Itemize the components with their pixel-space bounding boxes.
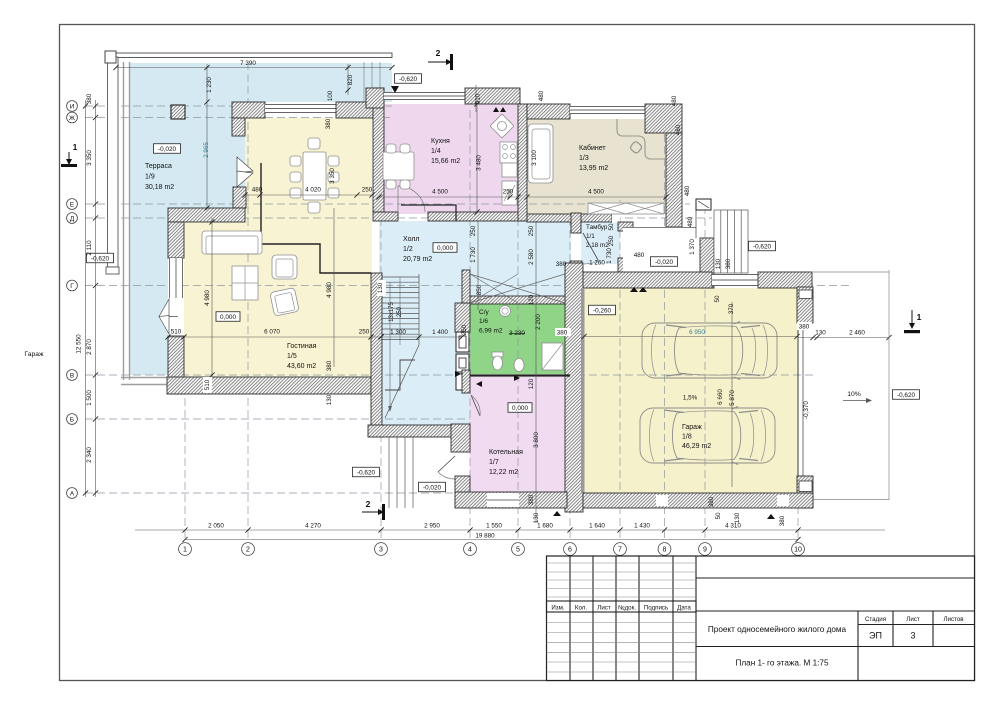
- svg-text:Д: Д: [70, 215, 75, 222]
- svg-text:-0,020: -0,020: [158, 146, 177, 153]
- svg-text:2,18 m2: 2,18 m2: [586, 242, 609, 249]
- svg-text:4 980: 4 980: [326, 282, 333, 298]
- svg-text:3 800: 3 800: [533, 432, 540, 448]
- svg-text:-0,020: -0,020: [423, 484, 442, 491]
- svg-text:2: 2: [246, 546, 250, 553]
- svg-text:2 050: 2 050: [208, 523, 224, 530]
- svg-text:380: 380: [86, 93, 93, 104]
- svg-text:100: 100: [327, 90, 334, 101]
- svg-text:130: 130: [815, 330, 826, 337]
- svg-text:7: 7: [618, 546, 622, 553]
- svg-text:480: 480: [687, 216, 694, 227]
- svg-text:-0,260: -0,260: [593, 307, 612, 314]
- svg-text:В: В: [70, 372, 74, 379]
- svg-text:4 500: 4 500: [432, 189, 448, 196]
- svg-text:1: 1: [73, 142, 78, 152]
- svg-text:120: 120: [528, 294, 535, 305]
- svg-text:Подпись: Подпись: [644, 605, 669, 612]
- svg-text:4 020: 4 020: [305, 187, 321, 194]
- svg-text:480: 480: [675, 124, 682, 135]
- svg-text:1: 1: [183, 546, 187, 553]
- svg-text:Дата: Дата: [677, 605, 691, 612]
- svg-text:-0,620: -0,620: [357, 469, 376, 476]
- svg-text:50: 50: [608, 223, 615, 231]
- svg-text:46,29 m2: 46,29 m2: [682, 443, 711, 450]
- svg-text:Листов: Листов: [943, 616, 964, 623]
- svg-text:130: 130: [734, 512, 741, 523]
- svg-text:3: 3: [379, 546, 383, 553]
- svg-text:1 730: 1 730: [606, 248, 613, 264]
- svg-text:Стадия: Стадия: [865, 616, 886, 623]
- svg-text:480: 480: [252, 187, 263, 194]
- svg-text:2 965: 2 965: [203, 142, 210, 158]
- svg-text:1 300: 1 300: [390, 329, 406, 336]
- svg-text:480: 480: [671, 95, 678, 106]
- svg-text:1 400: 1 400: [432, 329, 448, 336]
- svg-text:380: 380: [708, 496, 715, 507]
- svg-text:12 550: 12 550: [76, 334, 83, 354]
- svg-text:4 500: 4 500: [588, 189, 604, 196]
- svg-text:3 350: 3 350: [329, 168, 336, 184]
- svg-text:А: А: [70, 490, 75, 497]
- svg-text:Кол.: Кол.: [575, 605, 588, 612]
- svg-text:0,000: 0,000: [220, 314, 236, 321]
- svg-text:3 230: 3 230: [509, 330, 525, 337]
- svg-text:2 950: 2 950: [424, 523, 440, 530]
- svg-text:8: 8: [663, 546, 667, 553]
- svg-text:510: 510: [171, 329, 182, 336]
- svg-text:4: 4: [468, 546, 472, 553]
- svg-text:250: 250: [362, 187, 373, 194]
- svg-text:1 730: 1 730: [470, 247, 477, 263]
- svg-text:380: 380: [799, 324, 810, 331]
- svg-text:380: 380: [325, 118, 332, 129]
- svg-text:Холл: Холл: [403, 236, 420, 243]
- svg-text:1/5: 1/5: [287, 353, 297, 360]
- svg-text:2 870: 2 870: [86, 339, 93, 355]
- svg-text:250: 250: [461, 324, 468, 335]
- svg-text:Гостиная: Гостиная: [287, 343, 317, 350]
- svg-text:480: 480: [538, 90, 545, 101]
- svg-text:30,18 m2: 30,18 m2: [145, 184, 174, 191]
- svg-text:2 340: 2 340: [86, 447, 93, 463]
- svg-text:№док.: №док.: [618, 605, 636, 612]
- svg-text:4 270: 4 270: [305, 523, 321, 530]
- svg-text:510: 510: [204, 379, 211, 390]
- svg-text:Кабинет: Кабинет: [579, 144, 606, 152]
- svg-text:Изм.: Изм.: [551, 605, 565, 612]
- svg-text:Проект односемейного жилого до: Проект односемейного жилого дома: [708, 625, 847, 634]
- svg-text:1/3: 1/3: [579, 155, 589, 162]
- svg-text:1/8: 1/8: [682, 434, 692, 441]
- svg-text:1 430: 1 430: [634, 523, 650, 530]
- svg-text:Гараж: Гараж: [24, 351, 44, 358]
- svg-text:130: 130: [377, 282, 384, 293]
- svg-text:1 230: 1 230: [206, 77, 213, 93]
- svg-text:1/7: 1/7: [489, 459, 499, 466]
- svg-text:7 390: 7 390: [240, 60, 256, 67]
- svg-text:480: 480: [634, 252, 645, 259]
- svg-text:Котельная: Котельная: [489, 449, 523, 456]
- svg-text:1/9: 1/9: [145, 174, 155, 181]
- svg-text:1 550: 1 550: [486, 523, 502, 530]
- svg-text:250: 250: [608, 235, 615, 246]
- svg-text:43,60 m2: 43,60 m2: [287, 363, 316, 370]
- svg-text:380: 380: [557, 330, 568, 337]
- svg-text:1,5%: 1,5%: [683, 395, 698, 402]
- svg-text:-0,620: -0,620: [897, 392, 916, 399]
- svg-text:ЭП: ЭП: [869, 631, 882, 641]
- svg-text:2 580: 2 580: [528, 249, 535, 265]
- svg-text:1 260: 1 260: [589, 260, 605, 267]
- svg-text:6 660: 6 660: [717, 389, 724, 405]
- svg-text:13,95 m2: 13,95 m2: [579, 165, 608, 172]
- svg-text:1 640: 1 640: [589, 523, 605, 530]
- svg-text:3 100: 3 100: [531, 150, 538, 166]
- svg-text:15,66 m2: 15,66 m2: [431, 158, 460, 165]
- svg-text:Е: Е: [70, 201, 74, 208]
- svg-text:130: 130: [715, 258, 722, 269]
- svg-text:План 1- го этажа. М 1:75: План 1- го этажа. М 1:75: [735, 659, 828, 668]
- svg-text:50: 50: [715, 512, 722, 520]
- svg-text:250: 250: [397, 306, 403, 317]
- svg-text:-0,370: -0,370: [803, 401, 810, 419]
- svg-text:820: 820: [347, 74, 354, 85]
- svg-text:Г: Г: [70, 283, 74, 290]
- svg-text:250: 250: [359, 329, 370, 336]
- svg-text:1/2: 1/2: [403, 246, 413, 253]
- svg-text:1 370: 1 370: [689, 239, 696, 255]
- svg-text:380: 380: [779, 515, 786, 526]
- svg-text:Ж: Ж: [69, 115, 75, 122]
- svg-text:380: 380: [725, 258, 732, 269]
- svg-text:2 460: 2 460: [849, 330, 865, 337]
- svg-text:-0,620: -0,620: [399, 76, 418, 83]
- svg-text:Гараж: Гараж: [682, 424, 702, 431]
- svg-text:12,22 m2: 12,22 m2: [489, 469, 518, 476]
- svg-text:250: 250: [470, 225, 477, 236]
- svg-text:1 500: 1 500: [86, 390, 93, 406]
- svg-text:250: 250: [503, 189, 514, 196]
- svg-text:9: 9: [703, 546, 707, 553]
- svg-text:3 350: 3 350: [86, 150, 93, 166]
- svg-text:480: 480: [684, 185, 691, 196]
- svg-text:850: 850: [476, 284, 483, 295]
- svg-text:2 110: 2 110: [86, 240, 93, 256]
- svg-text:Тамбур: Тамбур: [586, 223, 608, 231]
- svg-text:Б: Б: [70, 416, 74, 423]
- svg-text:10: 10: [794, 546, 802, 553]
- svg-text:6,99 m2: 6,99 m2: [479, 328, 503, 335]
- svg-text:5 870: 5 870: [729, 390, 736, 406]
- svg-text:Лист: Лист: [906, 616, 920, 623]
- svg-text:250: 250: [528, 225, 535, 236]
- svg-text:1/1: 1/1: [586, 233, 595, 240]
- svg-text:-0,620: -0,620: [753, 243, 772, 250]
- svg-text:19 880: 19 880: [475, 533, 495, 540]
- svg-text:20,79 m2: 20,79 m2: [403, 256, 432, 263]
- svg-text:6 950: 6 950: [689, 329, 705, 336]
- svg-text:С/у: С/у: [479, 309, 490, 316]
- svg-text:1/4: 1/4: [431, 148, 441, 155]
- svg-text:13x175: 13x175: [389, 301, 395, 321]
- svg-text:3: 3: [910, 631, 915, 641]
- svg-text:130: 130: [326, 394, 333, 405]
- svg-text:6: 6: [568, 546, 572, 553]
- svg-text:10%: 10%: [847, 391, 861, 398]
- svg-text:4 980: 4 980: [204, 290, 211, 306]
- svg-text:50: 50: [714, 295, 721, 303]
- svg-text:130: 130: [533, 512, 540, 523]
- svg-text:120: 120: [528, 378, 535, 389]
- svg-text:5: 5: [516, 546, 520, 553]
- svg-text:Терраса: Терраса: [145, 163, 172, 170]
- svg-text:-0,620: -0,620: [91, 255, 110, 262]
- svg-text:0,000: 0,000: [437, 245, 453, 252]
- svg-text:2: 2: [366, 499, 371, 509]
- svg-text:0,000: 0,000: [512, 405, 528, 412]
- svg-text:2: 2: [436, 48, 441, 58]
- svg-text:1: 1: [917, 312, 922, 322]
- svg-text:3 480: 3 480: [476, 155, 483, 171]
- svg-text:2 200: 2 200: [535, 314, 542, 330]
- svg-text:380: 380: [326, 360, 333, 371]
- svg-text:380: 380: [528, 494, 535, 505]
- svg-text:-0,020: -0,020: [655, 259, 674, 266]
- svg-text:380: 380: [556, 261, 567, 268]
- svg-text:Лист: Лист: [597, 605, 611, 612]
- svg-text:И: И: [70, 103, 75, 110]
- svg-text:1/6: 1/6: [479, 318, 488, 325]
- svg-text:370: 370: [728, 303, 735, 314]
- svg-text:6 070: 6 070: [264, 329, 280, 336]
- svg-text:Кухня: Кухня: [431, 138, 450, 145]
